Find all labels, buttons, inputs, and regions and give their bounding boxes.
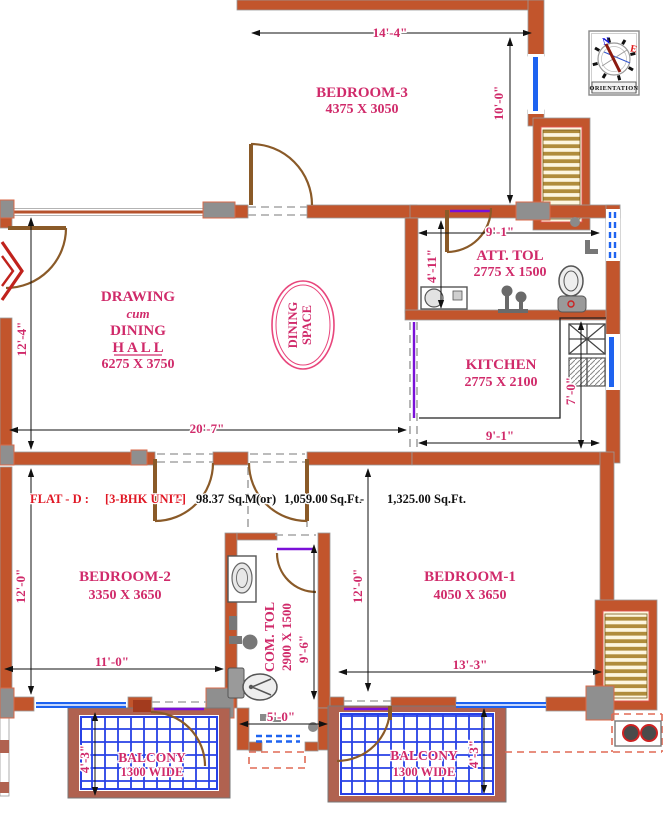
hall-label-line4: H A L L (112, 340, 163, 356)
dim-com-tol-exit-width: 5'-0" (267, 709, 295, 724)
floor-plan-canvas: BEDROOM-3 4375 X 3050 DRAWING cum DINING… (0, 0, 664, 814)
dim-kitchen-height: 7'-0" (563, 377, 578, 405)
att-tol-label: ATT. TOL (476, 248, 543, 264)
att-tol-drain-icon (570, 217, 580, 227)
dimension-lines (5, 33, 601, 795)
dining-space-line1: DINING (286, 301, 300, 348)
att-tol-tap2-icon (585, 240, 598, 254)
hall-label-line1: DRAWING (101, 289, 176, 305)
total-sqft-unit: Sq.Ft. (434, 492, 466, 506)
or-label: (or) (256, 492, 276, 506)
dim-hall-width: 20'-7" (190, 421, 225, 436)
bedroom1-size: 4050 X 3650 (433, 588, 506, 603)
door-main-entrance (2, 228, 66, 300)
dim-bedroom2-width: 11'-0" (95, 654, 129, 669)
kitchen-size: 2775 X 2100 (464, 375, 537, 390)
dimension-labels: 14'-4" 10'-0" 9'-1" 4'-11" 12'-4" 20'-7"… (13, 25, 578, 773)
window-bedroom3 (533, 57, 538, 111)
hall-size: 6275 X 3750 (101, 357, 174, 372)
compass-orientation-label: ORIENTATION (590, 85, 639, 92)
bedroom3-label: BEDROOM-3 (316, 85, 408, 101)
total-sqft-value: 1,325.00 (387, 492, 431, 506)
dim-att-tol-width: 9'-1" (486, 224, 514, 239)
kitchen-label: KITCHEN (466, 357, 537, 373)
bedroom3-size: 4375 X 3050 (325, 102, 398, 117)
flat-area-band: FLAT - D : [3-BHK UNIT] - 98.37 Sq.M. (o… (30, 492, 466, 506)
door-bedroom1 (249, 459, 307, 521)
hall-label-line2: cum (126, 306, 149, 321)
bedroom2-size: 3350 X 3650 (88, 588, 161, 603)
floor-plan-drawing: BEDROOM-3 4375 X 3050 DRAWING cum DINING… (0, 0, 664, 814)
bedroom1-label: BEDROOM-1 (424, 569, 516, 585)
unit-type-label: [3-BHK UNIT] (105, 492, 186, 506)
door-com-tol (277, 553, 316, 592)
dim-hall-height: 12'-4" (14, 322, 29, 357)
com-tol-washbasin-icon (228, 556, 256, 602)
dim-kitchen-width: 9'-1" (486, 428, 514, 443)
separator-1: - (178, 492, 182, 506)
stove-icon (569, 324, 605, 354)
com-tol-label: COM. TOL (263, 602, 278, 672)
dim-top-width: 14'-4" (373, 25, 408, 40)
area-sqm-value: 98.37 (196, 492, 224, 506)
burner-icon (615, 721, 661, 746)
com-tol-size: 2900 X 1500 (279, 603, 294, 671)
hall-label-line3: DINING (110, 323, 166, 339)
area-sqft-unit: Sq.Ft. (330, 492, 362, 506)
balcony-left-label: BALCONY (118, 750, 186, 765)
orientation-compass: N E ORIENTATION (589, 31, 639, 95)
balcony-left-size: 1300 WIDE (121, 765, 184, 779)
window-kitchen (609, 337, 614, 387)
att-tol-taps-icon (498, 286, 528, 314)
att-tol-size: 2775 X 1500 (473, 265, 546, 280)
dim-balcony-left-depth: 4'-3" (77, 745, 92, 773)
dim-bedroom1-height: 12'-0" (350, 569, 365, 604)
door-bedroom2 (155, 459, 213, 521)
balcony-right-label: BALCONY (390, 748, 458, 763)
bedroom2-label: BEDROOM-2 (79, 569, 171, 585)
walls (0, 0, 657, 796)
dim-bedroom1-width: 13'-3" (453, 657, 488, 672)
area-sqft-value: 1,059.00 (284, 492, 328, 506)
dim-balcony-right-depth: 4'-3" (466, 740, 481, 768)
dim-right-height: 10'-0" (491, 86, 506, 121)
dim-com-tol-height: 9'-6" (296, 635, 311, 663)
door-bedroom3 (251, 144, 312, 205)
att-tol-washbasin-icon (421, 287, 467, 309)
separator-2: - (360, 492, 364, 506)
flat-label: FLAT - D : (30, 492, 89, 506)
dim-att-tol-height: 4'-11" (424, 249, 439, 283)
dim-bedroom2-height: 12'-0" (13, 569, 28, 604)
att-tol-wc-icon (558, 266, 586, 312)
room-labels: BEDROOM-3 4375 X 3050 DRAWING cum DINING… (79, 85, 546, 779)
dining-space-line2: SPACE (300, 305, 314, 345)
balcony-right-size: 1300 WIDE (393, 765, 456, 779)
